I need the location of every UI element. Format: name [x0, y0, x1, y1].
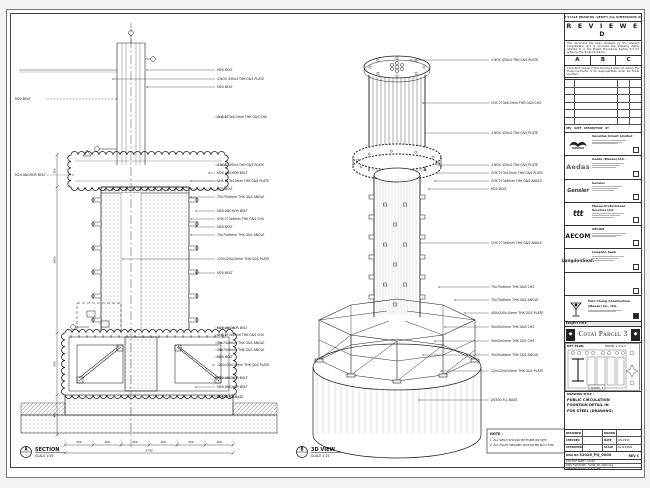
file-rows: CAD FILE NAME :51026 DWG FILE NAME :5102… — [565, 460, 641, 469]
drawing-title-label: DRAWING TITLE : — [567, 393, 639, 396]
leader-label: M20 BOLT — [217, 271, 233, 275]
svg-text:2. ALL FILLET WELDED SHOULD BE: 2. ALL FILLET WELDED SHOULD BE 6mm THK. — [490, 443, 555, 447]
leader-label: Ø2500 R.C BASE — [217, 394, 243, 399]
company-name: Aedas (Macau) Ltd. — [592, 158, 640, 162]
company-name: Langdon Seah — [592, 251, 640, 255]
leader-label: 75x75x6mm THK G&S ANGLE — [217, 341, 264, 345]
contractor-logo-icon — [565, 298, 587, 321]
dimension-label: 450 — [188, 440, 194, 444]
svg-text:SCALE 1:25: SCALE 1:25 — [311, 454, 329, 458]
leader-label: CHS 273x6mm THK G&S CHS — [217, 333, 264, 337]
company-row-blank — [565, 273, 641, 296]
leader-label: M20 ANCHOR BOLT — [217, 209, 248, 213]
svg-text:1. ALL WELD SHOULD BE FORM ON: 1. ALL WELD SHOULD BE FORM ON SITE. — [490, 438, 547, 442]
leader-label: 50x50x5mm THK G&S CHS — [491, 325, 534, 329]
leader-label: 50x50x5mm THK G&S CHS — [491, 339, 534, 343]
status-option-c[interactable]: C — [616, 56, 641, 65]
contractor-checkbox[interactable] — [633, 313, 639, 319]
company-row-gensler: Gensler Gensler — [565, 180, 641, 203]
company-row-aecom: AECOM AECOM — [565, 226, 641, 249]
title-block: DO NOT SCALE DRAWING. VERIFY ALL DIMENSI… — [564, 13, 642, 470]
key-plan: KEY PLAN PARCEL 1, 2 & 3 — [565, 343, 641, 392]
company-row-aedas: Aedas Aedas (Macau) Ltd. — [565, 156, 641, 179]
leader-label: 75x75x6mm THK G&S ANGLE — [217, 348, 264, 352]
leader-label: 120x120x10mm THK G&S PLATE — [217, 363, 269, 367]
reviewed-paragraph-1: This document has been reviewed by the r… — [565, 41, 641, 56]
svg-text:3D VIEW: 3D VIEW — [311, 447, 336, 453]
iso-3d-view: 4 NOS 450x4 THK G&S PLATECHS 273x6.3mm T… — [289, 15, 569, 462]
approval-table: REV DATE DESCRIPTION BY — [565, 80, 641, 133]
langdonseah-logo: LangdonSeah — [565, 249, 591, 271]
leader-label: M20 BOLT — [217, 355, 233, 359]
reviewed-title: R E V I E W E D — [565, 22, 641, 41]
reviewed-stamp: R E V I E W E D This document has been r… — [565, 22, 641, 80]
drawing-title-line: FOR STEEL (DRAWING) — [567, 409, 639, 414]
dimension-label: 450 — [76, 440, 82, 444]
company-checkbox[interactable] — [633, 264, 639, 270]
aedas-logo: Aedas — [565, 156, 591, 178]
leader-label: M20 BOLT — [491, 187, 507, 191]
contractor-name-line2: (Macau) Co., Ltd. — [588, 305, 640, 309]
leader-label: M20 BOLT — [15, 97, 31, 101]
dimension-label: 450 — [160, 440, 166, 444]
ttt-logo: ttt — [565, 203, 591, 225]
leader-label: M20 BOLT — [217, 85, 233, 89]
gensler-logo: Gensler — [565, 180, 591, 202]
leader-label: CHS 273x10mm THK G&S PLATE — [217, 179, 269, 183]
banner-emblem-icon: ◆ — [631, 329, 640, 341]
approval-table-footer: REV DATE DESCRIPTION BY — [565, 125, 641, 132]
company-row-ttt: ttt Macau Professional Services Ltd. — [565, 203, 641, 226]
svg-text:A: A — [24, 447, 28, 452]
dimension-label: 450 — [104, 440, 110, 444]
leader-label: CHS 273x6.3mm THK G&S CHS — [217, 115, 267, 119]
dimension-label: 300 — [53, 168, 57, 174]
svg-text:-: - — [25, 453, 27, 458]
leader-label: 75x75x6mm THK G&S ANGLE — [217, 233, 264, 237]
status-option-a[interactable]: A — [565, 56, 591, 65]
iso-geometry — [313, 56, 481, 458]
leader-label: 4 NOS 450x4 THK G&S PLATE — [491, 58, 538, 62]
company-name: Gensler — [592, 182, 640, 186]
leader-label: Ø2500 R.C BASE — [491, 397, 517, 402]
dimension-label: 1450 — [53, 256, 57, 263]
company-name: Macau Professional Services Ltd. — [592, 205, 640, 213]
leader-label: M20 ANCHOR BOLT — [217, 171, 248, 175]
leader-label: 75x75x6mm THK G&S CHS — [491, 285, 534, 289]
section-view-label: A - SECTION SCALE 1:25 — [21, 447, 66, 459]
dwg-no-label: DWG NO — [565, 454, 579, 457]
svg-text:PARCEL 1, 2 & 3: PARCEL 1, 2 & 3 — [605, 344, 626, 348]
dimension-label: 450 — [132, 440, 138, 444]
leader-label: CHS 273x6mm THK G&S CHS — [217, 217, 264, 221]
leader-label: M20 BOLT — [217, 187, 233, 191]
banner-emblem-icon: ◆ — [566, 329, 575, 341]
status-option-b[interactable]: B — [591, 56, 617, 65]
dwg-no-value: 51026_PQ_0000 — [579, 453, 628, 457]
company-row-langdonseah: LangdonSeah Langdon Seah — [565, 249, 641, 272]
leader-label: M20 BOLT — [217, 225, 233, 229]
svg-text:NOTE :: NOTE : — [490, 432, 503, 436]
leader-label: 75x75x6mm THK G&S ANGLE — [217, 195, 264, 199]
no-scale-strip: DO NOT SCALE DRAWING. VERIFY ALL DIMENSI… — [565, 14, 641, 22]
company-checkbox[interactable] — [633, 240, 639, 246]
status-options: A B C — [565, 55, 641, 66]
note-box: NOTE : 1. ALL WELD SHOULD BE FORM ON SIT… — [487, 429, 566, 453]
leader-label: 75x75x6mm THK G&S ANGLE — [491, 298, 538, 302]
company-name: Venetian Orient Limited — [592, 135, 640, 139]
drawing-sheet: M20 BOLT4 NOS 450x4 THK G&S PLATEM20 BOL… — [6, 9, 645, 478]
leader-label: 4 NOS 450x4 THK G&S PLATE — [491, 163, 538, 167]
leader-label: 120x120x10mm THK G&S PLATE — [491, 369, 543, 373]
svg-text:B: B — [300, 447, 303, 452]
svg-text:SCALE 1:25: SCALE 1:25 — [35, 454, 53, 458]
svg-text:-: - — [301, 453, 303, 458]
leader-label: CHS 273x10mm THK G&S PLATE — [491, 171, 543, 175]
dimension-label: 450 — [216, 440, 222, 444]
dwg-number-row: DWG NO 51026_PQ_0000 REV C — [565, 452, 641, 460]
leader-label: M20 ANCHOR BOLT — [217, 376, 248, 380]
leader-label: CHS 273x6mm THK G&S ANGLE — [491, 241, 542, 245]
project-banner: ◆ Cotai Parcel 3 ◆ — [565, 327, 641, 343]
leader-label: 400x200x10mm THK G&S PLATE — [491, 311, 543, 315]
consultant-list: Venetian Orient Limited Aedas Aedas (Mac… — [565, 133, 641, 296]
reviewed-paragraph-2: Consultant review of this document does … — [565, 66, 641, 77]
leader-label: CHS 273x6.3mm THK G&S CHS — [491, 101, 541, 105]
info-table: DESIGNED - DRAWN - CHECKED - DATE JAN 20… — [565, 430, 641, 452]
leader-label: M20 BOLT — [217, 68, 233, 72]
leader-label: 4 NOS 450x4 THK G&S PLATE — [217, 77, 264, 81]
venetian-logo-icon — [565, 133, 591, 155]
project-name: Cotai Parcel 3 — [578, 330, 627, 339]
svg-text:PARCEL 3: PARCEL 3 — [591, 386, 604, 390]
leader-label: M20 ANCHOR BOLT — [217, 385, 248, 389]
company-checkbox[interactable] — [633, 147, 639, 153]
contractor-box: Hsin Chong Construction (Macau) Co., Ltd… — [565, 298, 641, 322]
leader-label: 4 NOS 450x4 THK G&S PLATE — [217, 163, 264, 167]
dimension-label: 400 — [53, 412, 57, 418]
leader-label: M20 ANCHOR BOLT — [217, 326, 248, 330]
leader-label: 120x120x10mm THK G&S PLATE — [217, 257, 269, 261]
leader-label: CHS 273x6mm THK G&S ANGLE — [491, 179, 542, 183]
dimension-label: 600 — [53, 361, 57, 367]
svg-text:KEY PLAN: KEY PLAN — [567, 344, 584, 348]
iso-view-label: B - 3D VIEW SCALE 1:25 — [297, 447, 342, 459]
revision-badge: REV C — [628, 454, 641, 458]
leader-label: 4 NOS 450x4 THK G&S PLATE — [491, 131, 538, 135]
company-checkbox[interactable] — [633, 217, 639, 223]
dimension-total: 2700 — [145, 448, 153, 452]
leader-label: 50x50x6mm THK G&S ANGLE — [491, 353, 538, 357]
section-view: M20 BOLT4 NOS 450x4 THK G&S PLATEM20 BOL… — [13, 15, 283, 462]
aecom-logo: AECOM — [565, 226, 591, 248]
company-checkbox[interactable] — [633, 194, 639, 200]
company-checkbox[interactable] — [633, 171, 639, 177]
company-name: AECOM — [592, 228, 640, 232]
company-row-venetian: Venetian Orient Limited — [565, 133, 641, 156]
iso-annotations: 4 NOS 450x4 THK G&S PLATECHS 273x6.3mm T… — [410, 58, 543, 402]
drawing-title-box: DRAWING TITLE : PUBLIC CIRCULATION FOUNT… — [565, 392, 641, 430]
leader-label: M24 ANCHOR BOLT — [15, 173, 46, 177]
svg-text:SECTION: SECTION — [35, 447, 59, 453]
company-checkbox[interactable] — [633, 288, 639, 294]
